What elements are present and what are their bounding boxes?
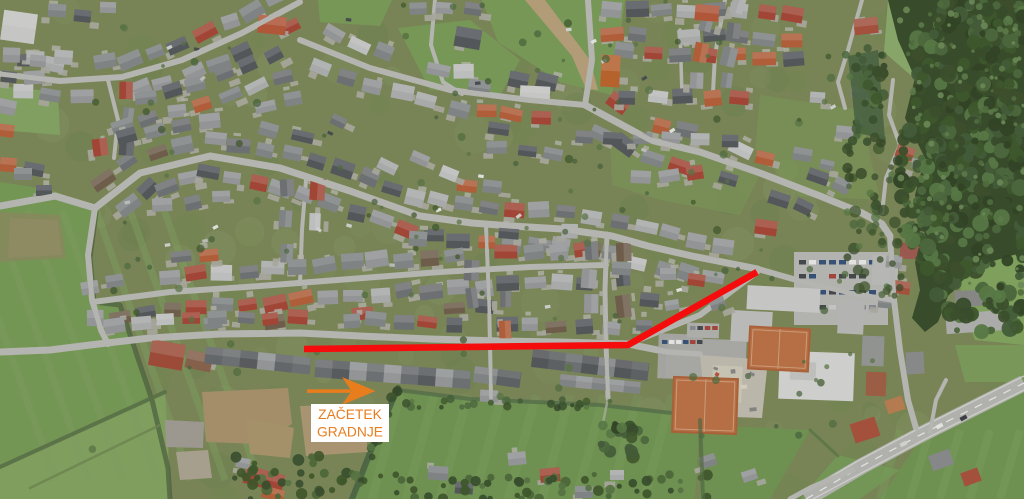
svg-text:ZAČETEK: ZAČETEK [318,406,382,422]
svg-text:GRADNJE: GRADNJE [317,425,383,440]
